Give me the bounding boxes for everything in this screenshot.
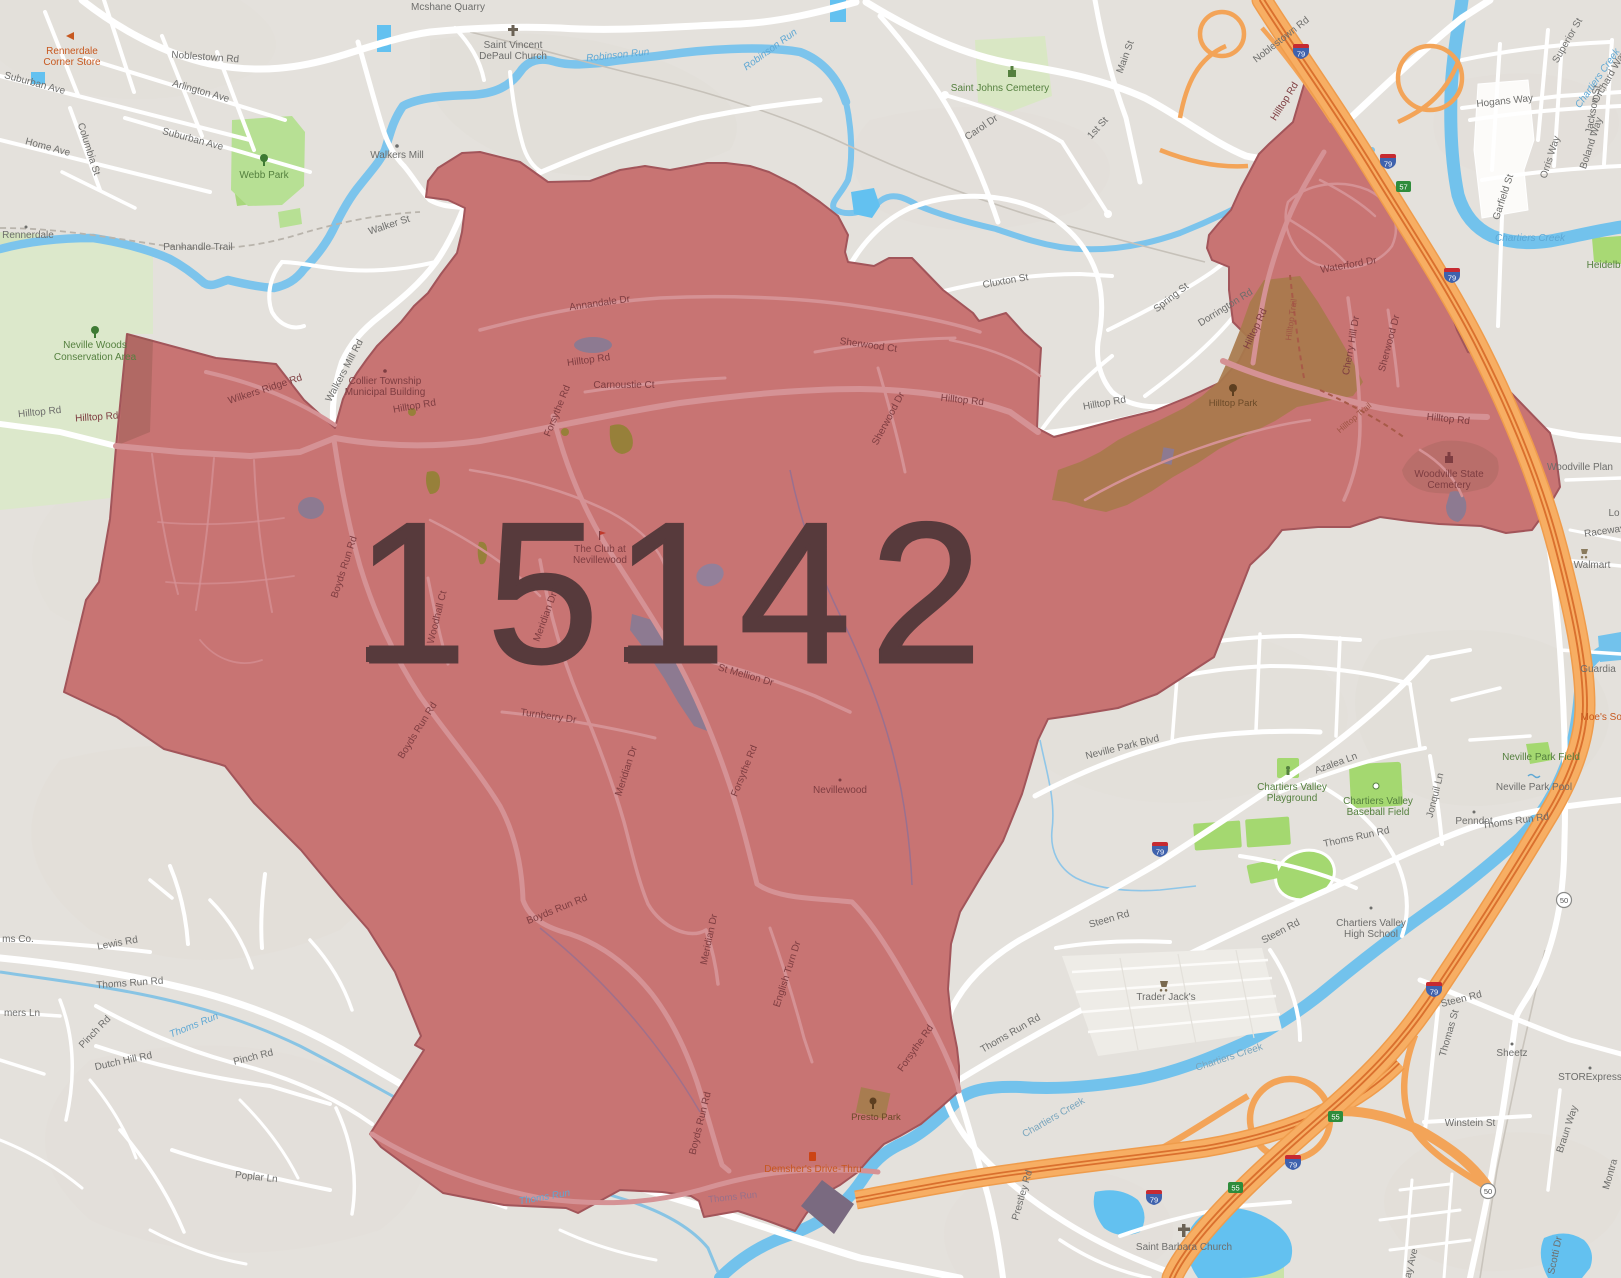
svg-text:Trader Jack's: Trader Jack's xyxy=(1136,992,1195,1003)
svg-text:Nevillewood: Nevillewood xyxy=(813,785,867,796)
svg-text:Municipal Building: Municipal Building xyxy=(345,387,426,398)
svg-text:mers Ln: mers Ln xyxy=(4,1008,40,1019)
svg-text:Lo: Lo xyxy=(1608,508,1620,519)
svg-text:Carnoustie Ct: Carnoustie Ct xyxy=(593,380,654,391)
svg-text:Saint Barbara Church: Saint Barbara Church xyxy=(1136,1242,1232,1253)
svg-text:Rennerdale: Rennerdale xyxy=(2,230,54,241)
svg-text:50: 50 xyxy=(1560,896,1568,905)
svg-text:Neville Woods: Neville Woods xyxy=(63,340,127,351)
svg-text:5: 5 xyxy=(487,482,598,705)
svg-text:50: 50 xyxy=(1484,1187,1492,1196)
svg-text:79: 79 xyxy=(1289,1161,1297,1170)
svg-text:79: 79 xyxy=(1150,1196,1158,1205)
svg-text:Guardia: Guardia xyxy=(1580,664,1616,675)
svg-text:79: 79 xyxy=(1297,50,1305,59)
svg-text:79: 79 xyxy=(1448,274,1456,283)
svg-text:STORExpress: STORExpress xyxy=(1558,1072,1621,1083)
svg-text:Sheetz: Sheetz xyxy=(1496,1048,1527,1059)
svg-text:The Club at: The Club at xyxy=(574,544,626,555)
svg-text:Cemetery: Cemetery xyxy=(1427,480,1470,491)
svg-text:Presto Park: Presto Park xyxy=(851,1112,901,1123)
svg-text:Neville Park Field: Neville Park Field xyxy=(1502,752,1580,763)
svg-text:Walmart: Walmart xyxy=(1574,560,1611,571)
svg-text:Corner Store: Corner Store xyxy=(43,57,101,68)
svg-text:1: 1 xyxy=(614,482,725,705)
svg-text:Collier Township: Collier Township xyxy=(349,376,422,387)
svg-text:79: 79 xyxy=(1156,848,1164,857)
svg-text:4: 4 xyxy=(739,482,850,705)
svg-text:DePaul Church: DePaul Church xyxy=(479,51,547,62)
svg-text:Playground: Playground xyxy=(1267,793,1318,804)
svg-text:Neville Park Pool: Neville Park Pool xyxy=(1496,782,1572,793)
svg-text:2: 2 xyxy=(870,482,981,705)
svg-text:Conservation Area: Conservation Area xyxy=(54,352,137,363)
svg-text:Baseball Field: Baseball Field xyxy=(1347,807,1410,818)
svg-text:55: 55 xyxy=(1331,1113,1339,1122)
svg-text:Mcshane Quarry: Mcshane Quarry xyxy=(411,2,485,13)
svg-text:79: 79 xyxy=(1430,988,1438,997)
svg-text:Woodville Plan: Woodville Plan xyxy=(1547,462,1613,473)
svg-text:Saint Vincent: Saint Vincent xyxy=(484,40,543,51)
svg-text:79: 79 xyxy=(1384,160,1392,169)
svg-text:Chartiers Valley: Chartiers Valley xyxy=(1257,782,1327,793)
svg-text:Moe's Sou: Moe's Sou xyxy=(1581,712,1621,723)
svg-text:Panhandle Trail: Panhandle Trail xyxy=(163,242,233,253)
svg-text:Demsher's Drive-Thru: Demsher's Drive-Thru xyxy=(764,1164,861,1175)
svg-text:Chartiers Valley: Chartiers Valley xyxy=(1343,796,1413,807)
svg-text:Chartiers Valley: Chartiers Valley xyxy=(1336,918,1406,929)
svg-text:1: 1 xyxy=(355,482,466,705)
svg-text:Saint Johns Cemetery: Saint Johns Cemetery xyxy=(951,83,1049,94)
svg-text:Rennerdale: Rennerdale xyxy=(46,46,98,57)
svg-text:Heidelber: Heidelber xyxy=(1587,260,1621,271)
svg-text:Webb Park: Webb Park xyxy=(239,170,289,181)
svg-text:Chartiers Creek: Chartiers Creek xyxy=(1495,233,1566,244)
svg-text:57: 57 xyxy=(1399,183,1407,192)
svg-text:Hilltop Park: Hilltop Park xyxy=(1209,398,1258,409)
svg-text:Winstein St: Winstein St xyxy=(1445,1118,1496,1129)
svg-text:Woodville State: Woodville State xyxy=(1414,469,1484,480)
svg-text:High School: High School xyxy=(1344,929,1398,940)
svg-text:ms Co.: ms Co. xyxy=(2,934,34,945)
svg-text:55: 55 xyxy=(1231,1184,1239,1193)
svg-text:Nevillewood: Nevillewood xyxy=(573,555,627,566)
svg-text:Walkers Mill: Walkers Mill xyxy=(370,150,424,161)
